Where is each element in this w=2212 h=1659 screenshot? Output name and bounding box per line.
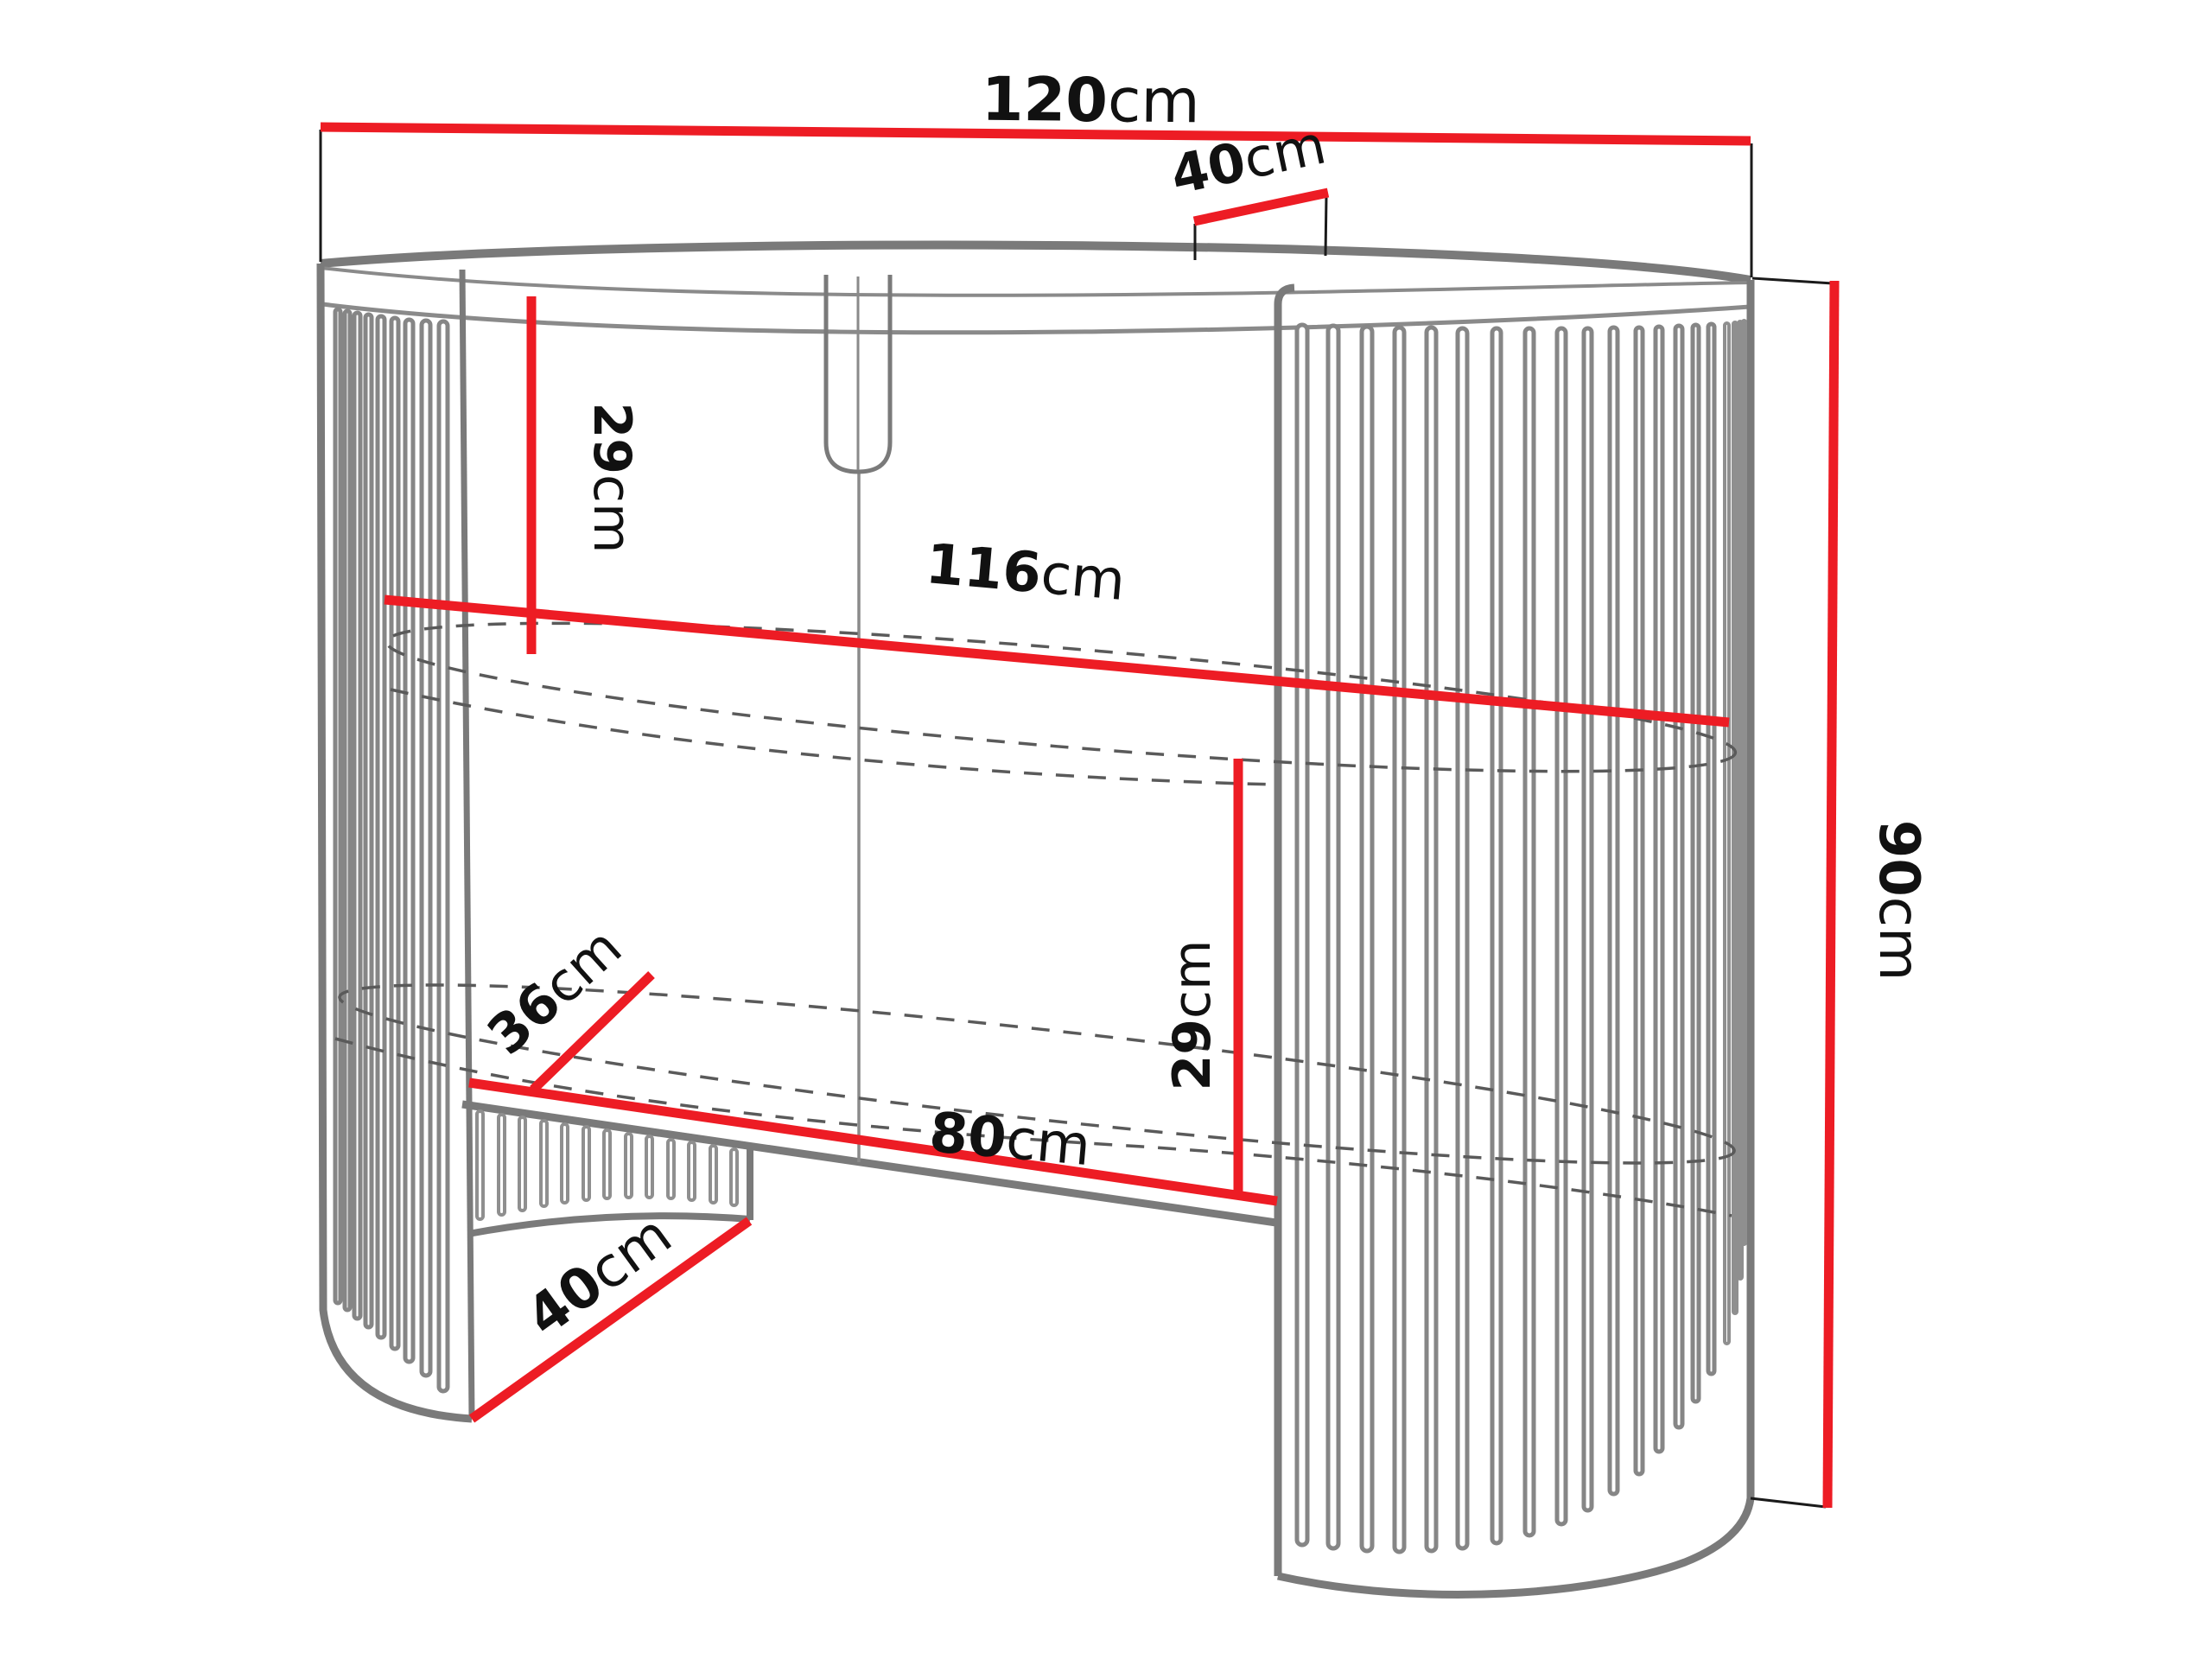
slat <box>1557 328 1566 1524</box>
slat <box>1693 325 1699 1402</box>
extension-line <box>1751 1498 1826 1507</box>
slat <box>1725 323 1729 1344</box>
slat <box>519 1117 525 1211</box>
tabletop-back-rim <box>321 245 1751 280</box>
slat <box>1708 324 1714 1374</box>
slat <box>1656 327 1662 1452</box>
dim-label-top-width: 120cm <box>981 64 1200 137</box>
slat <box>604 1130 610 1198</box>
dimension-shelf-depth: 36cm <box>475 915 652 1090</box>
right-panel-slats <box>1297 321 1745 1552</box>
dim-label-shelf-depth: 36cm <box>475 915 633 1066</box>
tabletop-slab-bottom-edge <box>322 304 1750 333</box>
dim-label-inner-width: 116cm <box>923 532 1128 613</box>
tabletop-front-rim <box>321 268 1750 296</box>
extension-line <box>1325 195 1326 256</box>
dimension-diagram-page: 120cm 40cm 29cm 116cm 36cm 80cm 29cm 40c… <box>0 0 2212 1659</box>
right-panel-bottom-edge <box>1278 1498 1751 1594</box>
slat <box>477 1111 483 1219</box>
dimension-base-depth: 40cm <box>472 1203 749 1419</box>
slat <box>626 1134 632 1198</box>
slat <box>1395 327 1404 1552</box>
dim-label-lower-clearance: 29cm <box>1162 940 1223 1091</box>
slat <box>1733 322 1737 1313</box>
slat <box>439 321 448 1391</box>
slat <box>1675 326 1682 1427</box>
dim-label-opening-width: 80cm <box>927 1101 1093 1179</box>
extension-line <box>1752 278 1833 283</box>
slat <box>335 309 340 1303</box>
slat <box>689 1142 695 1200</box>
slat <box>1362 327 1372 1551</box>
slat <box>731 1149 737 1205</box>
slat <box>365 315 372 1327</box>
slat <box>1610 327 1618 1494</box>
slat <box>1297 325 1307 1545</box>
slat <box>668 1140 674 1198</box>
slat <box>1743 321 1745 1244</box>
slat <box>405 320 413 1362</box>
slat <box>1525 328 1534 1535</box>
slat <box>499 1115 505 1215</box>
upper-shelf-hidden-oval <box>383 593 1739 802</box>
right-panel-front-edge <box>1278 288 1294 1576</box>
dimension-total-height: 90cm <box>1751 278 1930 1508</box>
slat <box>541 1121 547 1206</box>
furniture-dimension-diagram: 120cm 40cm 29cm 116cm 36cm 80cm 29cm 40c… <box>0 0 2212 1659</box>
slat <box>583 1127 589 1200</box>
dim-label-total-height: 90cm <box>1866 820 1930 982</box>
slat <box>422 321 430 1376</box>
slat <box>1492 328 1501 1543</box>
slat <box>354 313 360 1319</box>
upper-shelf-front-hidden-edge <box>391 690 1277 785</box>
slat <box>646 1136 652 1198</box>
slat <box>1427 327 1436 1551</box>
slat <box>562 1124 568 1203</box>
slat <box>1584 328 1592 1510</box>
slat <box>391 318 398 1349</box>
dimension-lower-clearance: 29cm <box>1162 759 1238 1197</box>
slat <box>1328 326 1338 1548</box>
dim-line-total-height <box>1827 281 1834 1508</box>
dimension-upper-clearance: 29cm <box>531 296 642 654</box>
dim-label-upper-clearance: 29cm <box>582 403 642 554</box>
left-panel-slats <box>335 309 448 1391</box>
slat <box>378 316 385 1338</box>
slat <box>1636 327 1643 1474</box>
slat <box>345 311 350 1310</box>
slat <box>710 1146 716 1203</box>
slat <box>1458 328 1467 1548</box>
left-panel-front-edge <box>462 270 472 1419</box>
